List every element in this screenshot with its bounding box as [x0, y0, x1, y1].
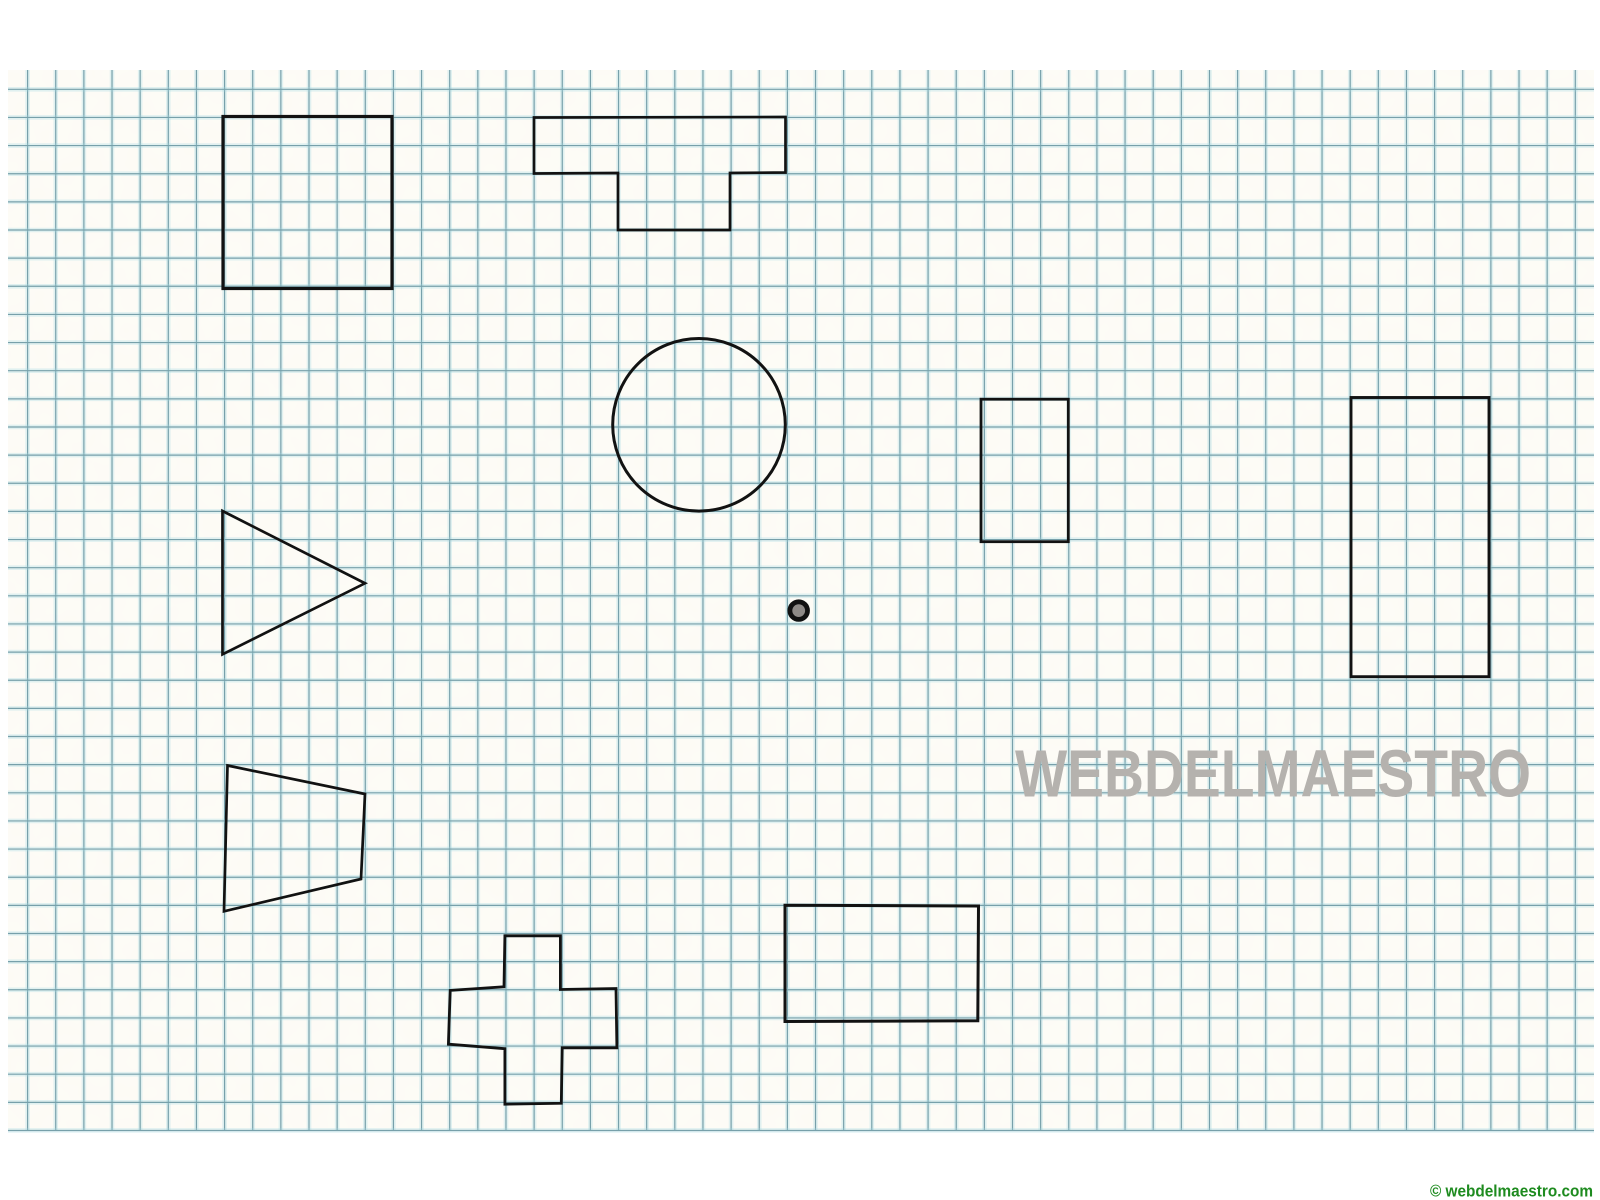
- svg-text:© webdelmaestro.com: © webdelmaestro.com: [1430, 1182, 1593, 1200]
- svg-text:WEBDELMAESTRO: WEBDELMAESTRO: [1015, 737, 1531, 812]
